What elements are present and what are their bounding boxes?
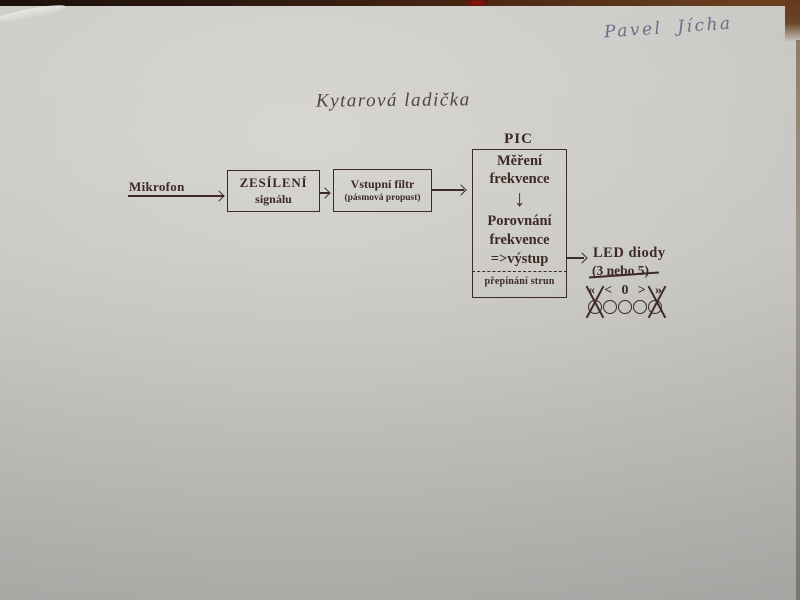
dashed-divider bbox=[472, 271, 567, 272]
pic-chip-label: PIC bbox=[472, 131, 565, 148]
signal-line bbox=[128, 195, 224, 197]
led-symbol-sharp: > bbox=[638, 284, 646, 298]
led-circle bbox=[633, 300, 647, 314]
led-title: LED diody bbox=[593, 245, 666, 262]
arrow-right-icon bbox=[576, 252, 587, 263]
led-symbol-in-tune: 0 bbox=[621, 284, 628, 298]
arrow-right-icon bbox=[319, 187, 330, 198]
pic-step1-line2: frekvence bbox=[473, 172, 566, 187]
pic-step2-line2: frekvence bbox=[473, 233, 566, 248]
pic-box: Měření frekvence ↓ Porovnání frekvence =… bbox=[472, 149, 567, 298]
amplifier-box: ZESÍLENÍ signálu bbox=[227, 170, 320, 212]
arrow-right-icon bbox=[455, 184, 466, 195]
pic-step2-line1: Porovnání bbox=[473, 214, 566, 229]
microphone-label: Mikrofon bbox=[129, 179, 185, 195]
pic-step2-line3: =>výstup bbox=[473, 252, 566, 267]
arrow-right-icon bbox=[213, 190, 224, 201]
led-circle bbox=[603, 300, 617, 314]
filter-label-line2: (pásmová propust) bbox=[344, 192, 420, 204]
led-symbol-flat: < bbox=[604, 284, 612, 298]
amplifier-label-line2: signálu bbox=[255, 192, 292, 208]
block-diagram: Mikrofon ZESÍLENÍ signálu Vstupní filtr … bbox=[0, 0, 800, 600]
input-filter-box: Vstupní filtr (pásmová propust) bbox=[333, 169, 432, 212]
pic-step1-line1: Měření bbox=[473, 154, 566, 169]
filter-label-line1: Vstupní filtr bbox=[351, 177, 415, 193]
led-circle bbox=[618, 300, 632, 314]
string-switching-label: přepínání strun bbox=[473, 277, 566, 287]
arrow-down-icon: ↓ bbox=[473, 187, 566, 210]
photographed-paper: Pavel Jícha Kytarová ladička Mikrofon ZE… bbox=[0, 0, 800, 600]
amplifier-label-line1: ZESÍLENÍ bbox=[240, 175, 308, 192]
